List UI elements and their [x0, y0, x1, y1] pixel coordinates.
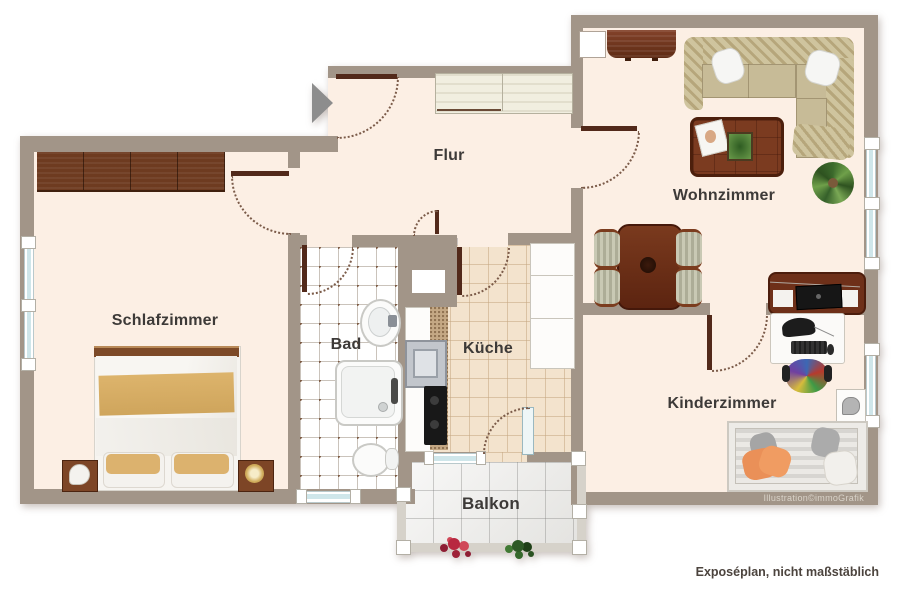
room-label-bad: Bad — [331, 336, 362, 354]
window-cap — [21, 358, 36, 371]
corner-sofa-arm-left — [684, 37, 703, 110]
dining-chair — [594, 229, 620, 269]
window-cap — [864, 257, 880, 270]
photo-face — [705, 130, 716, 143]
balcony-post — [571, 451, 586, 466]
wall-schlafzimmer-stub — [288, 150, 300, 168]
balcony-parapet-right — [577, 452, 586, 552]
shower-drain-icon — [378, 402, 388, 412]
stove — [424, 386, 447, 445]
office-chair — [786, 359, 828, 393]
doorway-kinderzimmer — [710, 303, 766, 315]
balcony-post — [572, 504, 587, 519]
cabinet-divider — [530, 318, 573, 319]
kitchen-sink-basin — [413, 349, 438, 378]
table-vase-icon — [640, 257, 656, 273]
corner-sofa-end-cushion — [791, 123, 851, 161]
sideboard-foot — [652, 58, 658, 61]
room-label-balkon: Balkon — [462, 494, 520, 514]
dining-chair — [676, 267, 702, 307]
window-cap — [296, 489, 307, 504]
bed-pillow-top — [174, 454, 229, 474]
window-cap — [864, 343, 880, 356]
entry-arrow-icon — [312, 83, 333, 123]
floorplan-canvas: Schlafzimmer Bad Flur Küche Wohnzimmer K… — [0, 0, 900, 597]
mouse-icon — [827, 344, 834, 355]
room-label-kueche: Küche — [463, 340, 513, 358]
cap-icon — [842, 397, 860, 415]
hall-cabinet-edge — [437, 109, 501, 111]
room-label-schlafzimmer: Schlafzimmer — [112, 312, 218, 330]
shower-tray — [341, 366, 395, 418]
sideboard — [607, 30, 676, 58]
balcony-plant-green — [512, 540, 524, 552]
balcony-post — [396, 540, 411, 555]
chair-armrest — [782, 365, 790, 382]
white-pillow — [822, 449, 859, 487]
balcony-post — [396, 487, 411, 502]
disclaimer-text: Exposéplan, nicht maßstäblich — [696, 565, 879, 579]
doorway-bad — [306, 235, 352, 247]
window-kinderzimmer — [866, 354, 876, 418]
table-plant — [727, 132, 753, 161]
floorplan: Schlafzimmer Bad Flur Küche Wohnzimmer K… — [0, 0, 900, 597]
sideboard-foot — [625, 58, 631, 61]
dining-chair — [594, 267, 620, 307]
sofa-seat-divider — [748, 64, 749, 98]
corner-column — [579, 31, 606, 58]
stove-burner-icon — [430, 396, 439, 405]
illustration-credit: Illustration©immoGrafik — [763, 493, 864, 503]
wardrobe — [37, 152, 225, 192]
window-cap — [864, 137, 880, 150]
kitchen-cabinets — [530, 243, 575, 369]
hall-cabinet — [435, 73, 573, 114]
room-label-wohnzimmer: Wohnzimmer — [673, 187, 775, 205]
bed-duvet-fold — [96, 418, 237, 456]
chair-armrest — [824, 365, 832, 382]
window-cap — [864, 197, 880, 210]
wall-bad-left — [288, 233, 300, 489]
balcony-flowers-red — [448, 538, 460, 550]
faucet-icon — [388, 315, 397, 327]
wall-top-right — [571, 15, 878, 28]
shaft-niche — [407, 270, 445, 293]
bed-pillow-top — [106, 454, 160, 474]
room-label-kinderzimmer: Kinderzimmer — [667, 395, 776, 413]
lamp-icon — [245, 464, 264, 483]
window-cap — [21, 236, 36, 249]
window-cap — [21, 299, 36, 312]
shower-fitting-icon — [391, 378, 398, 404]
keyboard-icon — [791, 341, 827, 354]
balcony-parapet-bottom — [397, 543, 585, 552]
bed-blanket — [98, 372, 234, 416]
toilet-tank — [385, 448, 399, 470]
window-cap — [350, 489, 361, 504]
balcony-post — [572, 540, 587, 555]
plant-center — [828, 178, 838, 188]
tv-lowboard-shelf — [773, 290, 793, 307]
tv-lowboard-shelf — [842, 290, 858, 307]
window-cap — [424, 451, 434, 465]
wall-bad-top-right — [352, 235, 398, 247]
stove-burner-icon — [430, 420, 439, 429]
hall-cabinet-divider — [502, 74, 503, 111]
dining-chair — [676, 229, 702, 269]
lamp-icon — [69, 464, 90, 485]
cabinet-divider — [530, 275, 573, 276]
room-label-flur: Flur — [433, 147, 464, 165]
tv-logo-dot — [816, 294, 821, 299]
doorway-kueche — [458, 233, 508, 247]
